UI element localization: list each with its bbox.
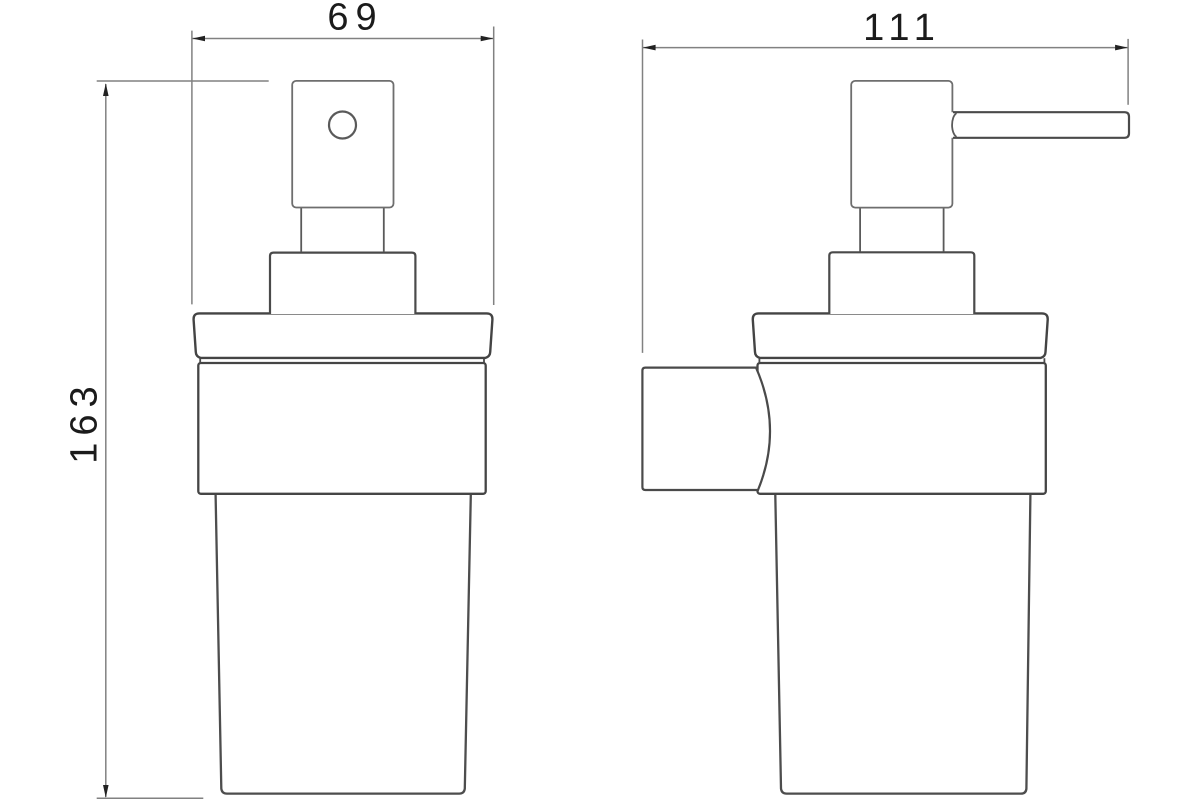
- svg-text:69: 69: [327, 0, 383, 39]
- svg-text:111: 111: [863, 7, 942, 49]
- svg-text:163: 163: [63, 379, 105, 463]
